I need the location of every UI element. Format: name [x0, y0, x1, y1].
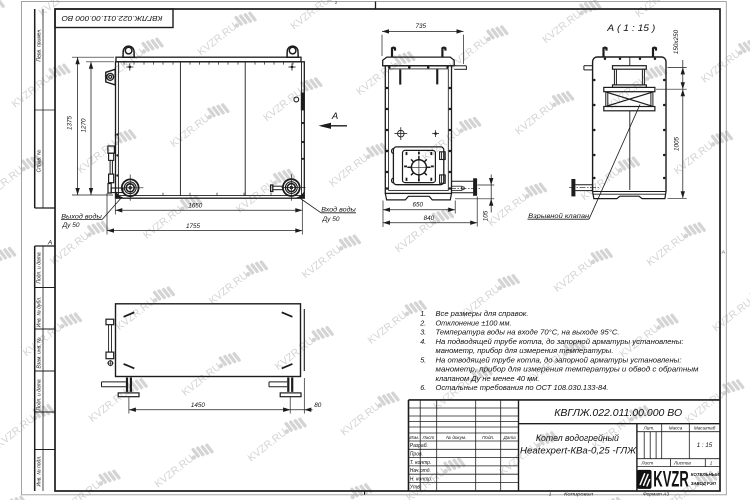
svg-text:Взам. инв. №: Взам. инв. №	[36, 337, 42, 369]
svg-text:Ду 50: Ду 50	[62, 222, 80, 229]
svg-text:105: 105	[483, 210, 490, 221]
svg-text:клапаном Ду не менее 40 мм.: клапаном Ду не менее 40 мм.	[436, 374, 540, 383]
svg-text:А: А	[721, 250, 725, 256]
svg-text:А ( 1 : 15 ): А ( 1 : 15 )	[606, 23, 655, 33]
svg-text:4.: 4.	[420, 337, 426, 346]
svg-text:№ докум.: № докум.	[446, 435, 466, 440]
svg-text:Вход воды: Вход воды	[321, 205, 356, 213]
svg-text:6.: 6.	[420, 383, 426, 392]
svg-text:Температура воды на входе 70°С: Температура воды на входе 70°С, на выход…	[436, 328, 620, 337]
svg-text:150х250: 150х250	[673, 29, 680, 54]
svg-text:Справ. №: Справ. №	[36, 149, 42, 172]
svg-text:Подп.: Подп.	[482, 435, 494, 440]
svg-text:Н. контр.: Н. контр.	[410, 476, 433, 482]
svg-text:Heatexpert-КВа-0,25 -ГЛЖ: Heatexpert-КВа-0,25 -ГЛЖ	[520, 446, 637, 456]
svg-text:1005: 1005	[674, 137, 681, 152]
svg-text:1: 1	[549, 491, 552, 496]
svg-text:Лит.: Лит.	[643, 426, 655, 431]
svg-text:Все размеры для справок.: Все размеры для справок.	[436, 309, 529, 318]
svg-text:ЗАВОД РЭП: ЗАВОД РЭП	[691, 481, 717, 486]
svg-text:Т. контр.: Т. контр.	[410, 460, 432, 466]
svg-text:840: 840	[424, 215, 435, 222]
svg-text:3.: 3.	[420, 328, 426, 337]
svg-text:2.: 2.	[419, 318, 426, 327]
svg-text:КВГЛЖ.022.011.00.000 ВО: КВГЛЖ.022.011.00.000 ВО	[554, 407, 682, 419]
svg-text:KVZR: KVZR	[653, 467, 689, 492]
svg-text:Котел водогрейный: Котел водогрейный	[536, 433, 619, 443]
svg-text:1375: 1375	[67, 116, 74, 131]
svg-text:Формат А3: Формат А3	[643, 491, 669, 496]
svg-text:1 : 15: 1 : 15	[697, 442, 713, 449]
svg-text:Подп. и дата: Подп. и дата	[36, 252, 42, 284]
svg-text:2: 2	[335, 0, 338, 5]
svg-text:1: 1	[710, 461, 713, 466]
svg-text:Листов: Листов	[673, 461, 691, 466]
svg-text:На подводящей трубе котла, до: На подводящей трубе котла, до запорной а…	[436, 337, 684, 346]
svg-text:1650: 1650	[188, 203, 203, 210]
svg-text:А: А	[47, 240, 52, 247]
svg-text:1.: 1.	[420, 309, 426, 318]
svg-text:1270: 1270	[81, 118, 88, 133]
svg-text:Выход воды: Выход воды	[61, 212, 102, 220]
svg-text:650: 650	[413, 202, 424, 209]
svg-text:КОТЕЛЬНЫЙ: КОТЕЛЬНЫЙ	[691, 470, 720, 477]
svg-text:Инв. № подл.: Инв. № подл.	[36, 455, 42, 486]
svg-text:А: А	[331, 111, 338, 122]
svg-text:Пров.: Пров.	[410, 452, 423, 458]
svg-text:Масштаб: Масштаб	[694, 426, 716, 431]
svg-text:Утв.: Утв.	[410, 485, 421, 491]
svg-text:Лист: Лист	[640, 461, 653, 466]
svg-text:Инв. № дубл.: Инв. № дубл.	[36, 297, 42, 328]
svg-text:КВГЛЖ.022.011.00.000 ВО: КВГЛЖ.022.011.00.000 ВО	[61, 14, 162, 23]
svg-text:80: 80	[314, 402, 322, 409]
svg-text:Разраб.: Разраб.	[410, 443, 428, 449]
svg-text:5.: 5.	[420, 355, 426, 364]
svg-text:Остальные требования по ОСТ 10: Остальные требования по ОСТ 108.030.133-…	[436, 383, 609, 392]
svg-text:Лист: Лист	[421, 435, 434, 440]
svg-text:На отводящей трубе котла, до з: На отводящей трубе котла, до запорной ар…	[436, 355, 682, 364]
svg-text:735: 735	[416, 23, 427, 30]
svg-text:Изм.: Изм.	[409, 435, 419, 440]
svg-text:Ду 50: Ду 50	[322, 216, 340, 223]
svg-text:Перв. примен.: Перв. примен.	[36, 28, 42, 61]
svg-text:1450: 1450	[191, 402, 206, 409]
svg-text:манометр, прибор для измерения: манометр, прибор для измерения температу…	[436, 346, 614, 355]
svg-text:Отклонение ±100 мм.: Отклонение ±100 мм.	[436, 318, 512, 327]
svg-text:Масса: Масса	[669, 426, 683, 431]
svg-text:Подп. и дата: Подп. и дата	[36, 379, 42, 411]
svg-text:манометр, прибор для измерения: манометр, прибор для измерения температу…	[436, 365, 699, 374]
svg-text:Копировал: Копировал	[564, 491, 593, 496]
svg-text:1755: 1755	[186, 223, 201, 230]
svg-text:Дата: Дата	[503, 435, 517, 440]
svg-text:Взрывной клапан: Взрывной клапан	[528, 212, 589, 220]
svg-text:Нач.отд.: Нач.отд.	[410, 468, 431, 474]
